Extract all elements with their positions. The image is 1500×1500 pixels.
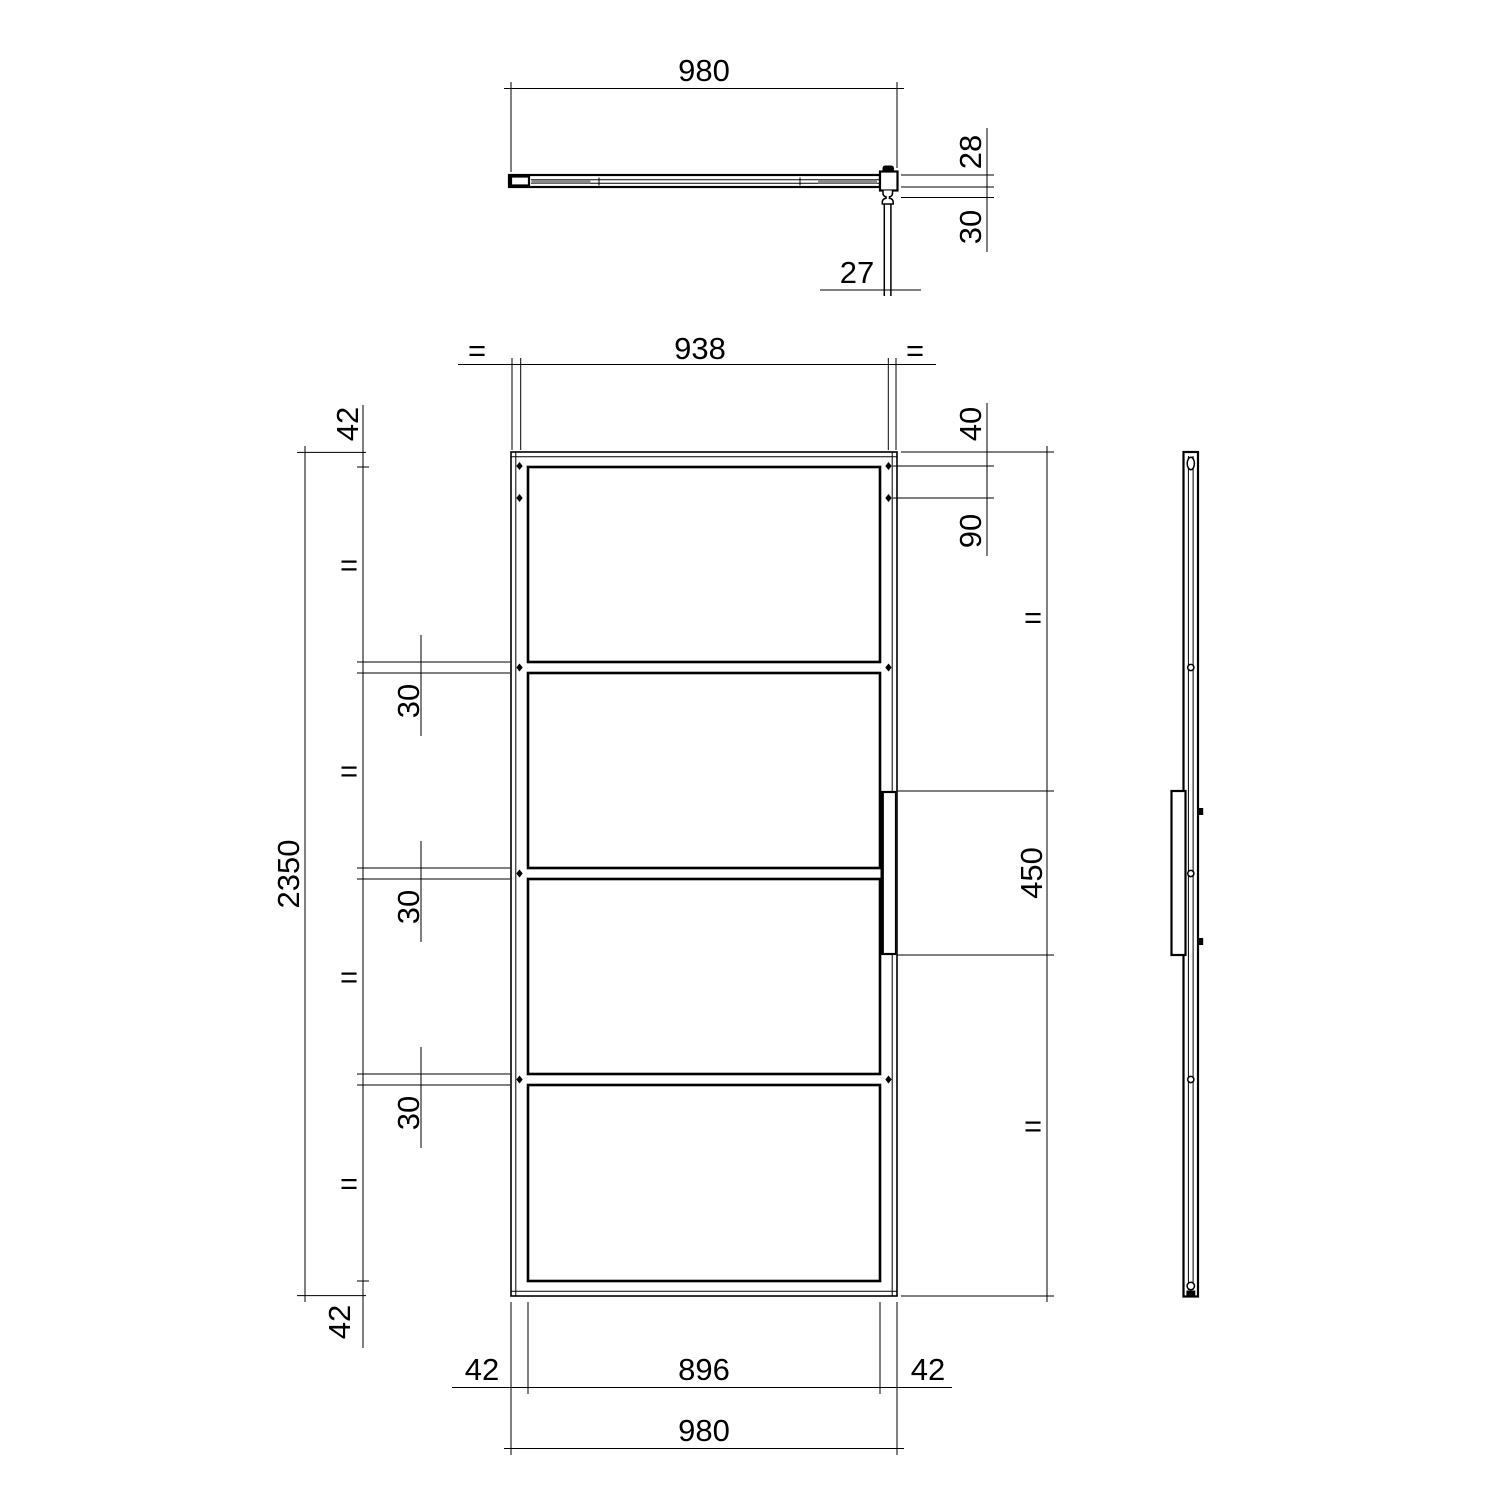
dim-label-glass-width: 896 xyxy=(678,1352,730,1387)
roller-knob xyxy=(883,166,895,172)
equal-mark-panel-2: = xyxy=(340,754,358,789)
profile-insert-right xyxy=(818,180,877,183)
right-dimension-chain: = 450 = xyxy=(898,446,1055,1302)
equal-mark-right-top: = xyxy=(1024,600,1042,635)
dim-label-door-thickness: 28 xyxy=(953,135,988,169)
equal-mark-top-left: = xyxy=(468,333,486,368)
dim-thickness-and-projection: 28 30 xyxy=(901,128,994,252)
dim-label-handle-width: 27 xyxy=(840,255,874,290)
left-dimension-chain: 42 42 = = = = 30 30 30 xyxy=(322,405,510,1348)
dim-label-stile-left: 42 xyxy=(465,1352,499,1387)
technical-drawing-page: 980 28 30 27 xyxy=(0,0,1500,1500)
handle-bar-plan xyxy=(884,204,891,296)
handle-bracket-plan xyxy=(882,191,893,205)
dim-label-center-distance: 938 xyxy=(674,331,726,366)
dim-hanger-positions: 40 90 xyxy=(893,403,994,556)
equal-mark-top-right: = xyxy=(906,333,924,368)
floor-guide-block xyxy=(1186,1291,1195,1297)
dim-label-rail-height-3: 30 xyxy=(391,1096,426,1130)
dim-label-profile-top: 42 xyxy=(330,407,365,441)
handle-side xyxy=(1172,791,1186,955)
dim-label-hanger-spacing: 90 xyxy=(953,514,988,548)
dim-top-width: 980 xyxy=(504,53,904,172)
dim-label-handle-length: 450 xyxy=(1014,847,1049,899)
handle-front xyxy=(881,791,896,955)
roller-slot-top xyxy=(1187,457,1194,469)
dim-label-hanger-inset: 40 xyxy=(953,407,988,441)
dim-label-door-width: 980 xyxy=(678,1413,730,1448)
dim-label-stile-right: 42 xyxy=(911,1352,945,1387)
dim-center-distance: = 938 = xyxy=(458,331,936,450)
dim-label-handle-projection: 30 xyxy=(953,210,988,244)
dim-label-rail-height-1: 30 xyxy=(391,684,426,718)
front-view: = 938 = 2350 42 42 = = = = 30 xyxy=(271,331,1054,1455)
dim-label-rail-height-2: 30 xyxy=(391,890,426,924)
equal-mark-panel-3: = xyxy=(340,960,358,995)
door-drawing: 980 28 30 27 xyxy=(0,0,1500,1500)
dim-label-top-width: 980 xyxy=(678,53,730,88)
top-view: 980 28 30 27 xyxy=(504,53,994,296)
equal-mark-right-bottom: = xyxy=(1024,1109,1042,1144)
dim-label-door-height: 2350 xyxy=(271,840,306,909)
dim-label-profile-bottom: 42 xyxy=(322,1305,357,1339)
profile-insert-left xyxy=(532,180,591,183)
bottom-dimension-chains: 42 896 42 980 xyxy=(452,1302,952,1455)
dim-handle-width: 27 xyxy=(820,255,921,290)
end-cap-left xyxy=(511,177,529,186)
equal-mark-panel-4: = xyxy=(340,1166,358,1201)
door-frame-outline xyxy=(511,452,897,1296)
equal-mark-panel-1: = xyxy=(340,548,358,583)
side-view xyxy=(1172,452,1204,1297)
end-block-right xyxy=(880,172,898,191)
